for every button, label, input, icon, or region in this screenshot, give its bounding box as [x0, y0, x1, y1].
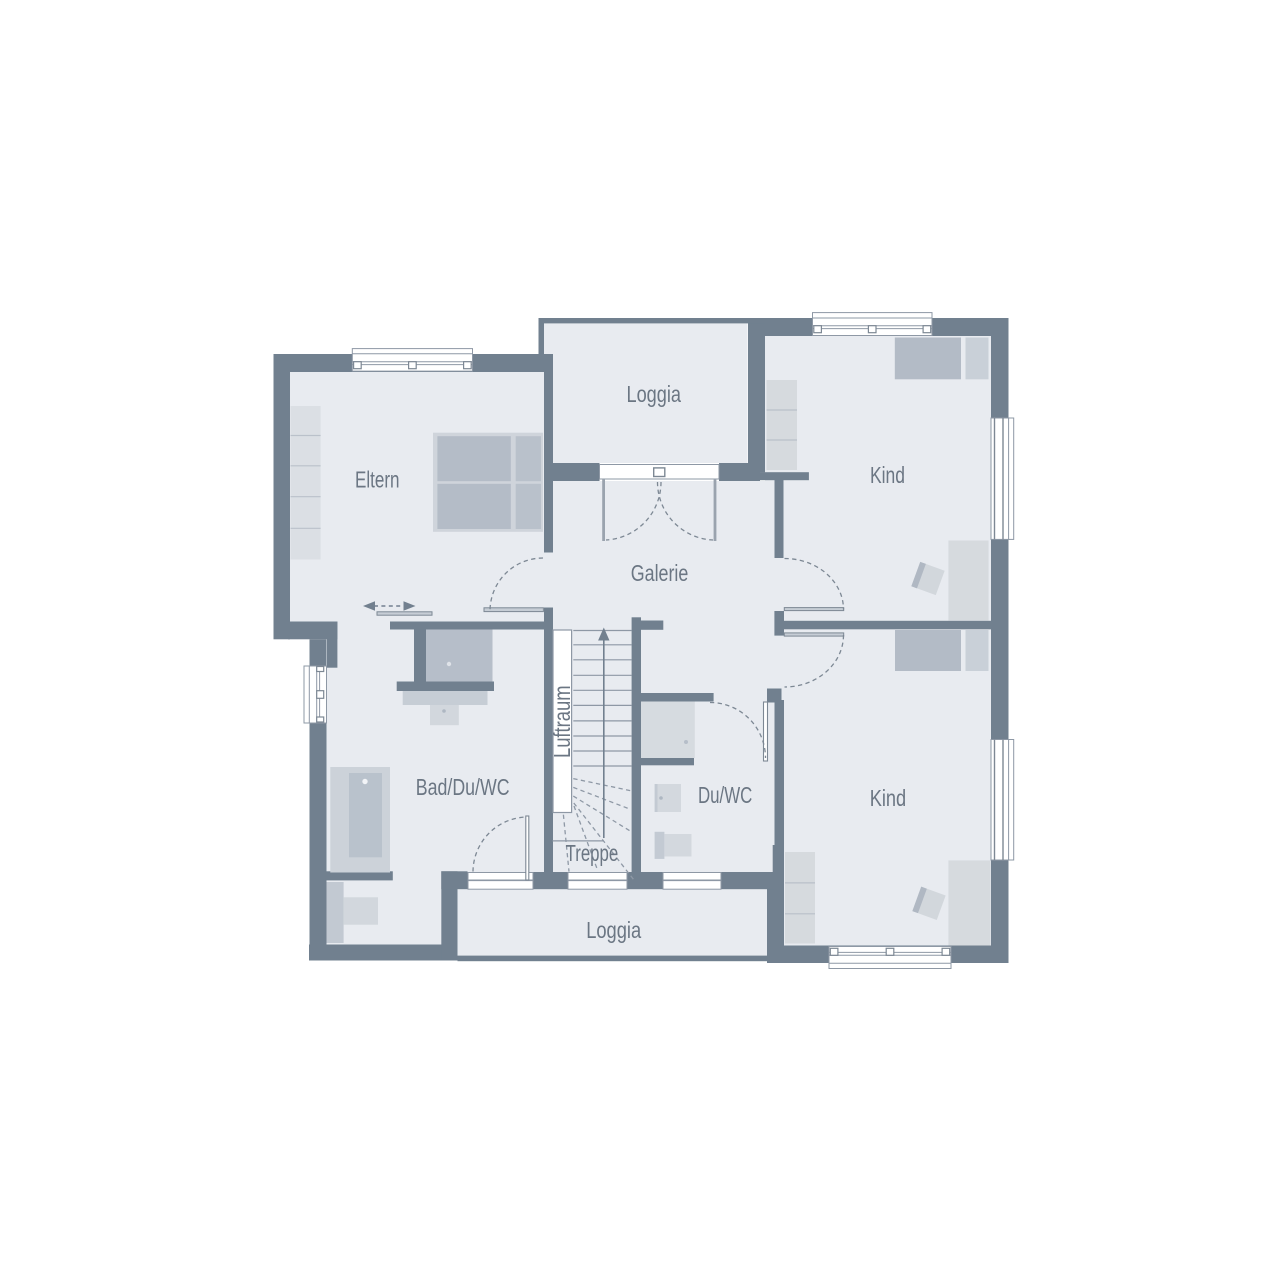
svg-text:Du/WC: Du/WC — [698, 782, 752, 808]
svg-text:Kind: Kind — [870, 462, 905, 488]
svg-text:Galerie: Galerie — [631, 560, 689, 586]
svg-text:Eltern: Eltern — [355, 467, 400, 493]
svg-text:Bad/Du/WC: Bad/Du/WC — [416, 774, 510, 800]
svg-text:Treppe: Treppe — [566, 840, 619, 866]
svg-text:Kind: Kind — [870, 785, 907, 811]
svg-text:Luftraum: Luftraum — [549, 686, 575, 759]
svg-text:Loggia: Loggia — [586, 917, 641, 943]
svg-text:Loggia: Loggia — [627, 381, 682, 407]
